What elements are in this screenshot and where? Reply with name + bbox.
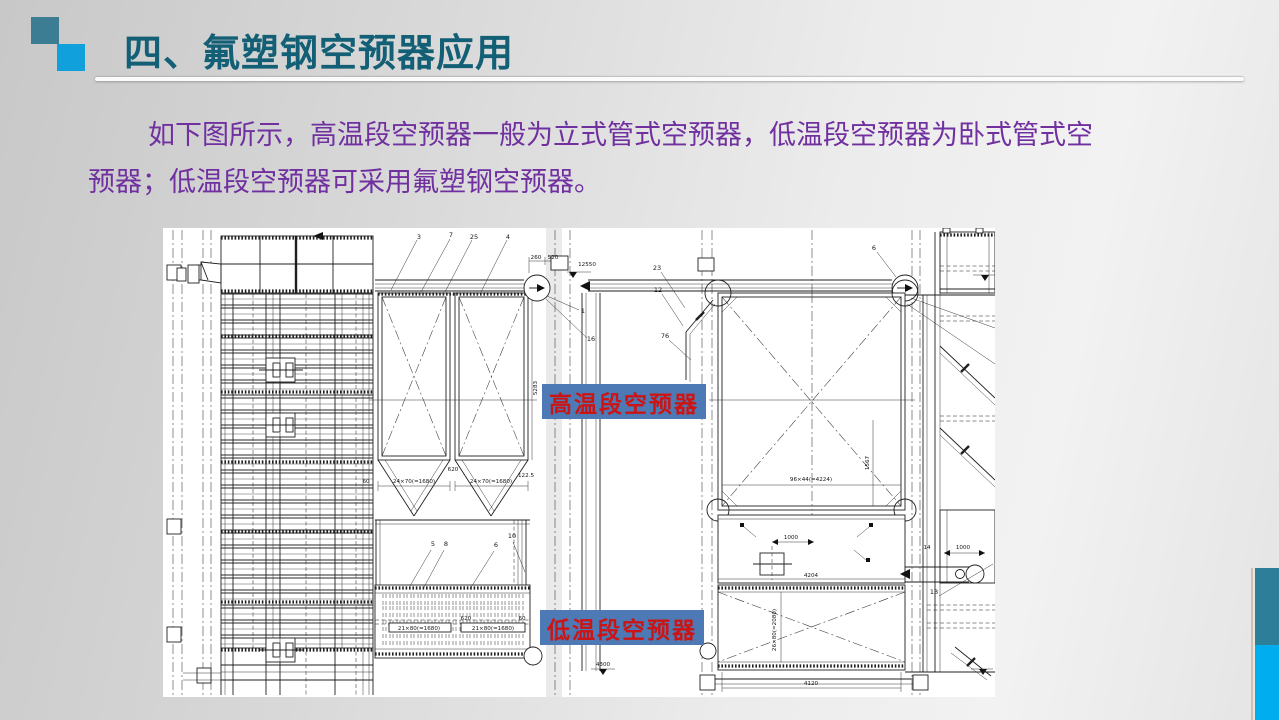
svg-text:10: 10 [508, 532, 516, 540]
engineering-drawing: 260520125506024×70(=1680)24×70(=1680)620… [163, 228, 995, 697]
body-line-2: 预器；低温段空预器可采用氟塑钢空预器。 [88, 159, 1148, 206]
left-centerlines [167, 230, 211, 695]
svg-text:8: 8 [444, 540, 448, 548]
edge-accent-line [1251, 568, 1253, 720]
svg-text:96×44(=4224): 96×44(=4224) [790, 477, 832, 483]
accent-square-teal [31, 17, 59, 44]
svg-text:520: 520 [548, 255, 559, 261]
edge-bar-blue [1255, 645, 1279, 720]
low-temp-preheater-band [375, 520, 542, 665]
svg-text:4300: 4300 [596, 662, 611, 668]
svg-text:60: 60 [518, 616, 526, 622]
left-duct-stub [177, 262, 221, 283]
svg-text:620: 620 [448, 467, 459, 473]
rotary-preheater-square [705, 280, 918, 521]
body-paragraph: 如下图所示，高温段空预器一般为立式管式空预器，低温段空预器为卧式管式空 预器；低… [88, 112, 1148, 206]
svg-text:12: 12 [654, 286, 662, 294]
label-high-temp-preheater: 高温段空预器 [542, 384, 706, 419]
svg-text:12550: 12550 [578, 262, 596, 268]
svg-text:21×80(=1680): 21×80(=1680) [472, 626, 514, 632]
svg-text:25: 25 [470, 233, 478, 241]
svg-text:16: 16 [587, 335, 595, 343]
boiler-wall-grid [183, 236, 373, 695]
svg-text:4204: 4204 [804, 573, 819, 579]
svg-text:76: 76 [661, 332, 669, 340]
svg-text:1000: 1000 [956, 545, 971, 551]
page-title: 四、氟塑钢空预器应用 [124, 22, 514, 77]
svg-text:122.5: 122.5 [518, 473, 534, 479]
svg-text:3: 3 [417, 233, 421, 241]
svg-text:260: 260 [531, 255, 542, 261]
svg-text:1: 1 [581, 307, 585, 315]
svg-text:5283: 5283 [533, 380, 539, 395]
svg-text:60: 60 [362, 479, 370, 485]
high-temp-preheater-panels [369, 239, 537, 516]
svg-text:23: 23 [653, 264, 661, 272]
svg-text:26×80(=2080): 26×80(=2080) [772, 609, 778, 651]
svg-text:24×70(=1680): 24×70(=1680) [393, 479, 435, 485]
accent-square-blue [57, 44, 85, 71]
body-line-1: 如下图所示，高温段空预器一般为立式管式空预器，低温段空预器为卧式管式空 [88, 112, 1148, 159]
svg-text:6: 6 [872, 244, 876, 252]
svg-text:21×80(=1680): 21×80(=1680) [398, 626, 440, 632]
svg-text:5: 5 [431, 540, 435, 548]
svg-text:1567: 1567 [865, 455, 871, 470]
slide-background: 四、氟塑钢空预器应用 如下图所示，高温段空预器一般为立式管式空预器，低温段空预器… [0, 0, 1279, 720]
svg-text:13: 13 [930, 588, 938, 596]
svg-text:7: 7 [449, 231, 453, 239]
edge-bar-teal [1255, 568, 1279, 645]
title-divider [95, 77, 1244, 81]
svg-text:6: 6 [494, 541, 498, 549]
svg-text:1000: 1000 [784, 535, 799, 541]
svg-text:14: 14 [923, 545, 931, 551]
svg-text:4120: 4120 [804, 681, 819, 687]
label-low-temp-preheater: 低温段空预器 [540, 610, 704, 645]
svg-text:620: 620 [461, 616, 472, 622]
svg-text:4: 4 [506, 233, 510, 241]
svg-text:24×70(=1680): 24×70(=1680) [470, 479, 512, 485]
